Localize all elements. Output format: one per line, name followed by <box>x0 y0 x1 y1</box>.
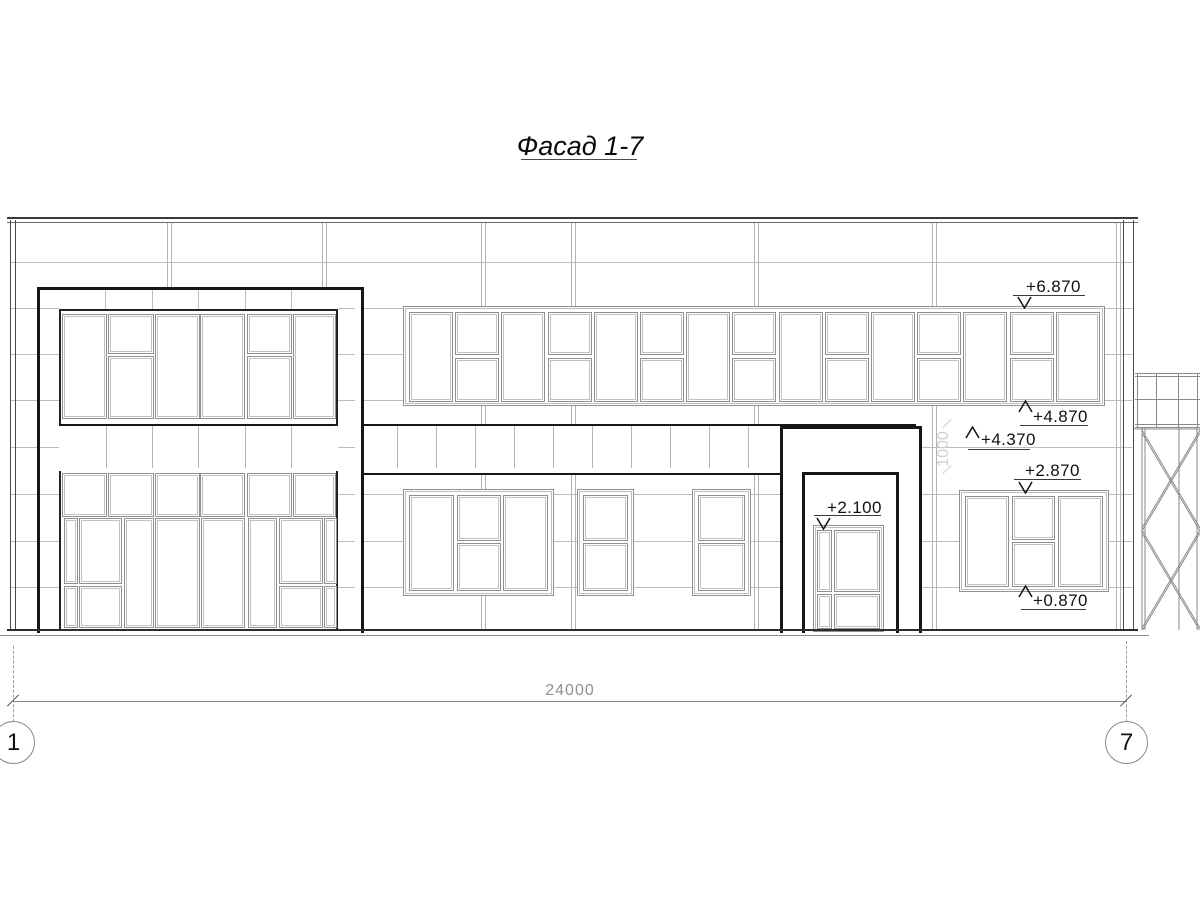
window-pane <box>698 495 745 541</box>
window-pane <box>108 356 154 419</box>
band-joint <box>631 426 632 468</box>
window-pane <box>698 543 745 591</box>
door-sidelight <box>817 530 832 592</box>
storefront-pane <box>248 518 277 628</box>
portal-upper-windows <box>59 309 338 426</box>
elevation-label: +4.370 <box>981 430 1036 450</box>
overall-dimension-label: 24000 <box>515 682 625 700</box>
storefront-door-pane <box>279 518 323 584</box>
transom-pane <box>293 473 336 517</box>
ribbon-pane <box>917 358 961 402</box>
band-joint <box>553 426 554 468</box>
window-pane <box>409 495 454 591</box>
elevation-arrow-down-icon <box>815 517 832 530</box>
elevation-leader <box>1021 609 1086 610</box>
band-joint <box>670 426 671 468</box>
portal-strip-joint <box>338 587 355 588</box>
portal-strip-joint <box>198 290 199 309</box>
band-joint <box>709 426 710 468</box>
tower-post <box>1156 373 1157 428</box>
entrance-door <box>813 525 884 632</box>
door-sidelight <box>817 594 832 629</box>
door-leaf <box>834 530 880 592</box>
elevation-arrow-up-icon <box>964 426 981 439</box>
ribbon-pane <box>455 358 499 402</box>
window-pane <box>62 314 107 419</box>
band-joint <box>475 426 476 468</box>
tower-post <box>1137 373 1138 428</box>
tower-rail <box>1135 399 1200 400</box>
storefront-door-pane <box>64 586 78 628</box>
ribbon-pane <box>548 358 592 402</box>
elevation-arrow-down-icon <box>1016 296 1033 309</box>
building-left-edge <box>10 220 16 630</box>
door-leaf <box>834 594 880 629</box>
tower-post <box>1197 373 1198 428</box>
window-pane <box>583 495 628 541</box>
building-right-edge <box>1123 220 1134 630</box>
portal-strip-joint <box>40 400 59 401</box>
window-b <box>577 489 634 596</box>
portal-band <box>59 424 334 475</box>
window-pane <box>1012 542 1055 587</box>
window-pane <box>293 314 336 419</box>
window-pane <box>247 314 292 354</box>
axis-bubble-7: 7 <box>1105 721 1148 764</box>
elevation-arrow-up-icon <box>1017 585 1034 598</box>
axis-number: 1 <box>7 729 20 757</box>
window-pane <box>200 314 245 419</box>
ribbon-pane <box>871 312 915 402</box>
ribbon-pane <box>779 312 823 402</box>
storefront-door-pane <box>64 518 78 584</box>
ribbon-pane <box>825 358 869 402</box>
storefront-door-pane <box>324 518 337 584</box>
ribbon-pane <box>1010 358 1054 402</box>
dimension-line <box>13 701 1126 702</box>
ribbon-pane <box>963 312 1007 402</box>
window-pane <box>247 356 292 419</box>
portal-strip-joint <box>291 290 292 309</box>
storefront-pane <box>124 518 154 628</box>
stair-tower-braces <box>1133 428 1200 630</box>
elevation-leader <box>814 515 881 516</box>
window-a <box>403 489 554 596</box>
ribbon-pane <box>548 312 592 355</box>
transom-pane <box>247 473 292 517</box>
ribbon-pane <box>409 312 453 402</box>
ribbon-pane <box>455 312 499 355</box>
window-pane <box>503 495 548 591</box>
wall-joint-horizontal <box>11 262 1132 263</box>
tower-rail <box>1135 427 1200 428</box>
ribbon-pane <box>501 312 545 402</box>
storefront-door-pane <box>324 586 337 628</box>
ground-line <box>7 629 1138 631</box>
ribbon-pane <box>640 358 684 402</box>
ribbon-pane <box>686 312 730 402</box>
ribbon-pane <box>1010 312 1054 355</box>
elevation-leader <box>1014 479 1081 480</box>
portal-strip-joint <box>40 447 59 448</box>
portal-strip-joint <box>40 541 59 542</box>
elevation-leader <box>1020 425 1088 426</box>
ribbon-pane <box>594 312 638 402</box>
window-d <box>959 490 1109 592</box>
transom-pane <box>200 473 245 517</box>
portal-strip-joint <box>245 290 246 309</box>
tower-post <box>1178 373 1179 428</box>
ribbon-window <box>403 306 1105 406</box>
elevation-leader <box>968 449 1030 450</box>
portal-lower-windows <box>59 471 338 630</box>
ground-base-line <box>0 635 1149 636</box>
wall-joint-vertical <box>1116 222 1121 629</box>
elevation-label: +4.870 <box>1033 407 1088 427</box>
band-joint <box>106 426 107 468</box>
band-joint <box>152 426 153 468</box>
tower-rail <box>1135 373 1200 374</box>
ribbon-pane <box>1056 312 1100 402</box>
band-joint <box>748 426 749 468</box>
window-pane <box>583 543 628 591</box>
axis-number: 7 <box>1120 729 1133 757</box>
storefront-door-pane <box>79 518 122 584</box>
facade-elevation-drawing: Фасад 1-7 +6.870 +4.870 +4.370 +2.870 +2… <box>0 0 1200 900</box>
axis-extension-line-1 <box>13 646 14 722</box>
band-joint <box>291 426 292 468</box>
elevation-label: +0.870 <box>1033 591 1088 611</box>
window-pane <box>457 543 501 591</box>
portal-strip-joint <box>40 308 59 309</box>
portal-strip-joint <box>40 354 59 355</box>
portal-strip-joint <box>338 494 355 495</box>
portal-strip-joint <box>338 447 355 448</box>
band-joint <box>198 426 199 468</box>
storefront-pane <box>155 518 200 628</box>
left-portal <box>37 287 364 633</box>
elevation-label: +2.870 <box>1025 461 1080 481</box>
storefront-pane <box>201 518 245 628</box>
ribbon-pane <box>825 312 869 355</box>
portal-strip-joint <box>40 587 59 588</box>
elevation-arrow-up-icon <box>1017 400 1034 413</box>
portal-strip-joint <box>338 308 355 309</box>
title-underline <box>521 159 637 160</box>
window-pane <box>1012 496 1055 540</box>
elevation-label: +6.870 <box>1026 277 1081 297</box>
dimension-band-height: 1000 <box>935 421 953 477</box>
ribbon-pane <box>917 312 961 355</box>
window-pane <box>108 314 154 354</box>
band-joint <box>397 426 398 468</box>
drawing-title: Фасад 1-7 <box>505 131 655 162</box>
window-pane <box>965 496 1009 587</box>
portal-strip-joint <box>338 541 355 542</box>
elevation-arrow-down-icon <box>1017 481 1034 494</box>
window-pane <box>457 495 501 541</box>
axis-bubble-1: 1 <box>0 721 35 764</box>
band-joint <box>436 426 437 468</box>
band-joint <box>514 426 515 468</box>
ribbon-pane <box>640 312 684 355</box>
portal-strip-joint <box>40 494 59 495</box>
parapet-line <box>7 217 1138 223</box>
portal-strip-joint <box>338 400 355 401</box>
portal-strip-joint <box>338 354 355 355</box>
window-pane <box>1058 496 1103 587</box>
transom-pane <box>155 473 200 517</box>
transom-pane <box>62 473 107 517</box>
axis-extension-line-7 <box>1126 641 1127 722</box>
portal-strip-joint <box>105 290 106 309</box>
ribbon-pane <box>732 312 776 355</box>
window-c <box>692 489 751 596</box>
storefront-door-pane <box>79 586 122 628</box>
band-joint <box>245 426 246 468</box>
transom-pane <box>108 473 154 517</box>
band-joint <box>592 426 593 468</box>
storefront-door-pane <box>279 586 323 628</box>
tower-rail <box>1135 376 1200 377</box>
tower-rail <box>1135 424 1200 425</box>
portal-strip-joint <box>152 290 153 309</box>
window-pane <box>155 314 200 419</box>
ribbon-pane <box>732 358 776 402</box>
